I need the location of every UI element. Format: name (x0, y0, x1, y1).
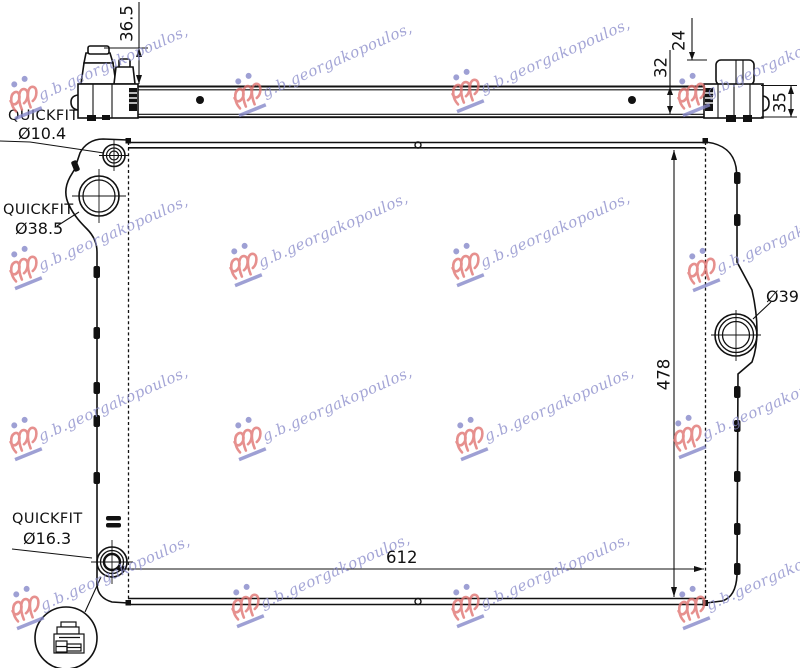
dim-end-fitting-height: 35 (771, 81, 790, 125)
right-end-fitting (704, 60, 769, 122)
port-mid-left-circle (72, 169, 126, 223)
quickfit-mid-label: QUICKFIT (3, 202, 74, 218)
quickfit-bottom-label: QUICKFIT (12, 511, 83, 527)
bar-hole-left (196, 96, 204, 104)
dim-bracket-offset: 24 (670, 19, 689, 63)
dim-core-width: 612 (386, 548, 418, 567)
quickfit-top-size: Ø10.4 (18, 124, 66, 143)
detail-balloon (35, 607, 97, 668)
dim-cap-height-left: 36.5 (118, 2, 137, 46)
dimension-24 (687, 18, 707, 60)
left-tank-outline (66, 139, 128, 603)
quickfit-top-label: QUICKFIT (8, 108, 79, 124)
quickfit-mid-size: Ø38.5 (15, 219, 63, 238)
quickfit-bottom-size: Ø16.3 (23, 529, 71, 548)
dim-core-height: 478 (655, 353, 674, 397)
clip-mark (106, 516, 121, 521)
top-bar (84, 87, 706, 118)
left-inlet-connector (71, 46, 138, 121)
port-right-size: Ø39 (766, 287, 799, 306)
right-tank-outline (706, 142, 757, 603)
port-top-left-circle (99, 140, 129, 171)
clip-mark (106, 523, 121, 528)
radiator-technical-drawing: QUICKFIT Ø10.4 QUICKFIT Ø38.5 QUICKFIT Ø… (0, 0, 800, 668)
port-right-circle (711, 310, 761, 361)
bar-hole-right (628, 96, 636, 104)
core-bottom-mark (415, 599, 421, 605)
radiator-core (126, 138, 709, 606)
diagram-lineart (0, 0, 800, 668)
dim-bar-height: 32 (652, 46, 671, 90)
